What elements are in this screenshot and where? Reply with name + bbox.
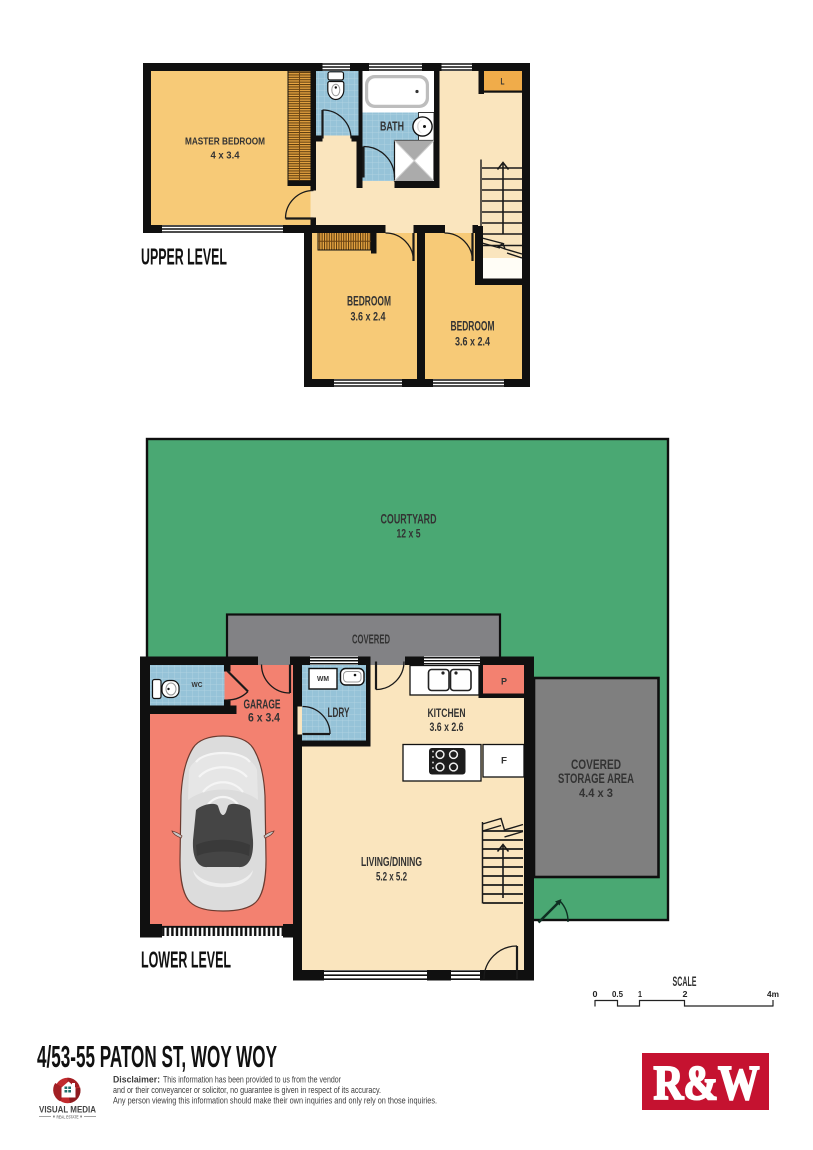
- svg-text:UPPER LEVEL: UPPER LEVEL: [141, 244, 227, 270]
- svg-text:F: F: [501, 756, 507, 767]
- svg-text:STORAGE AREA: STORAGE AREA: [558, 771, 634, 786]
- svg-text:KITCHEN: KITCHEN: [428, 706, 466, 720]
- svg-text:LOWER LEVEL: LOWER LEVEL: [141, 947, 231, 973]
- svg-text:3.6 x 2.4: 3.6 x 2.4: [351, 309, 386, 323]
- svg-text:REAL ESTATE: REAL ESTATE: [57, 1114, 79, 1119]
- svg-text:COURTYARD: COURTYARD: [381, 511, 437, 526]
- svg-text:3.6 x 2.4: 3.6 x 2.4: [455, 334, 490, 348]
- svg-text:Disclaimer:This information ha: Disclaimer:This information has been pro…: [113, 1075, 341, 1085]
- svg-text:COVERED: COVERED: [571, 757, 621, 772]
- svg-text:L: L: [501, 77, 505, 87]
- svg-text:BEDROOM: BEDROOM: [451, 319, 495, 334]
- svg-text:R&W: R&W: [654, 1055, 760, 1110]
- svg-text:5.2 x 5.2: 5.2 x 5.2: [376, 872, 407, 884]
- svg-text:4 x 3.4: 4 x 3.4: [211, 150, 240, 162]
- svg-text:0.5: 0.5: [612, 989, 623, 999]
- svg-text:2: 2: [683, 989, 688, 999]
- svg-text:6 x 3.4: 6 x 3.4: [248, 713, 281, 725]
- svg-text:LIVING/DINING: LIVING/DINING: [361, 855, 422, 869]
- svg-text:4m: 4m: [767, 989, 779, 999]
- svg-text:COVERED: COVERED: [352, 632, 390, 646]
- svg-text:SCALE: SCALE: [673, 974, 697, 989]
- svg-text:4/53-55 PATON ST, WOY WOY: 4/53-55 PATON ST, WOY WOY: [37, 1039, 277, 1074]
- svg-text:0: 0: [593, 989, 598, 999]
- svg-text:and or their conveyancer or so: and or their conveyancer or solicitor, n…: [113, 1085, 381, 1095]
- svg-text:P: P: [501, 677, 508, 688]
- svg-text:3.6 x 2.6: 3.6 x 2.6: [430, 722, 464, 734]
- svg-text:1: 1: [638, 989, 642, 999]
- svg-text:Any person viewing this inform: Any person viewing this information shou…: [113, 1096, 437, 1106]
- svg-text:WC: WC: [192, 680, 204, 689]
- svg-text:MASTER BEDROOM: MASTER BEDROOM: [185, 136, 265, 148]
- svg-text:LDRY: LDRY: [328, 705, 350, 720]
- svg-text:BATH: BATH: [380, 119, 404, 133]
- svg-text:BEDROOM: BEDROOM: [347, 294, 391, 309]
- svg-text:4.4 x 3: 4.4 x 3: [579, 786, 613, 800]
- svg-text:WM: WM: [317, 674, 329, 683]
- svg-text:12 x 5: 12 x 5: [397, 526, 421, 540]
- svg-text:GARAGE: GARAGE: [244, 698, 281, 712]
